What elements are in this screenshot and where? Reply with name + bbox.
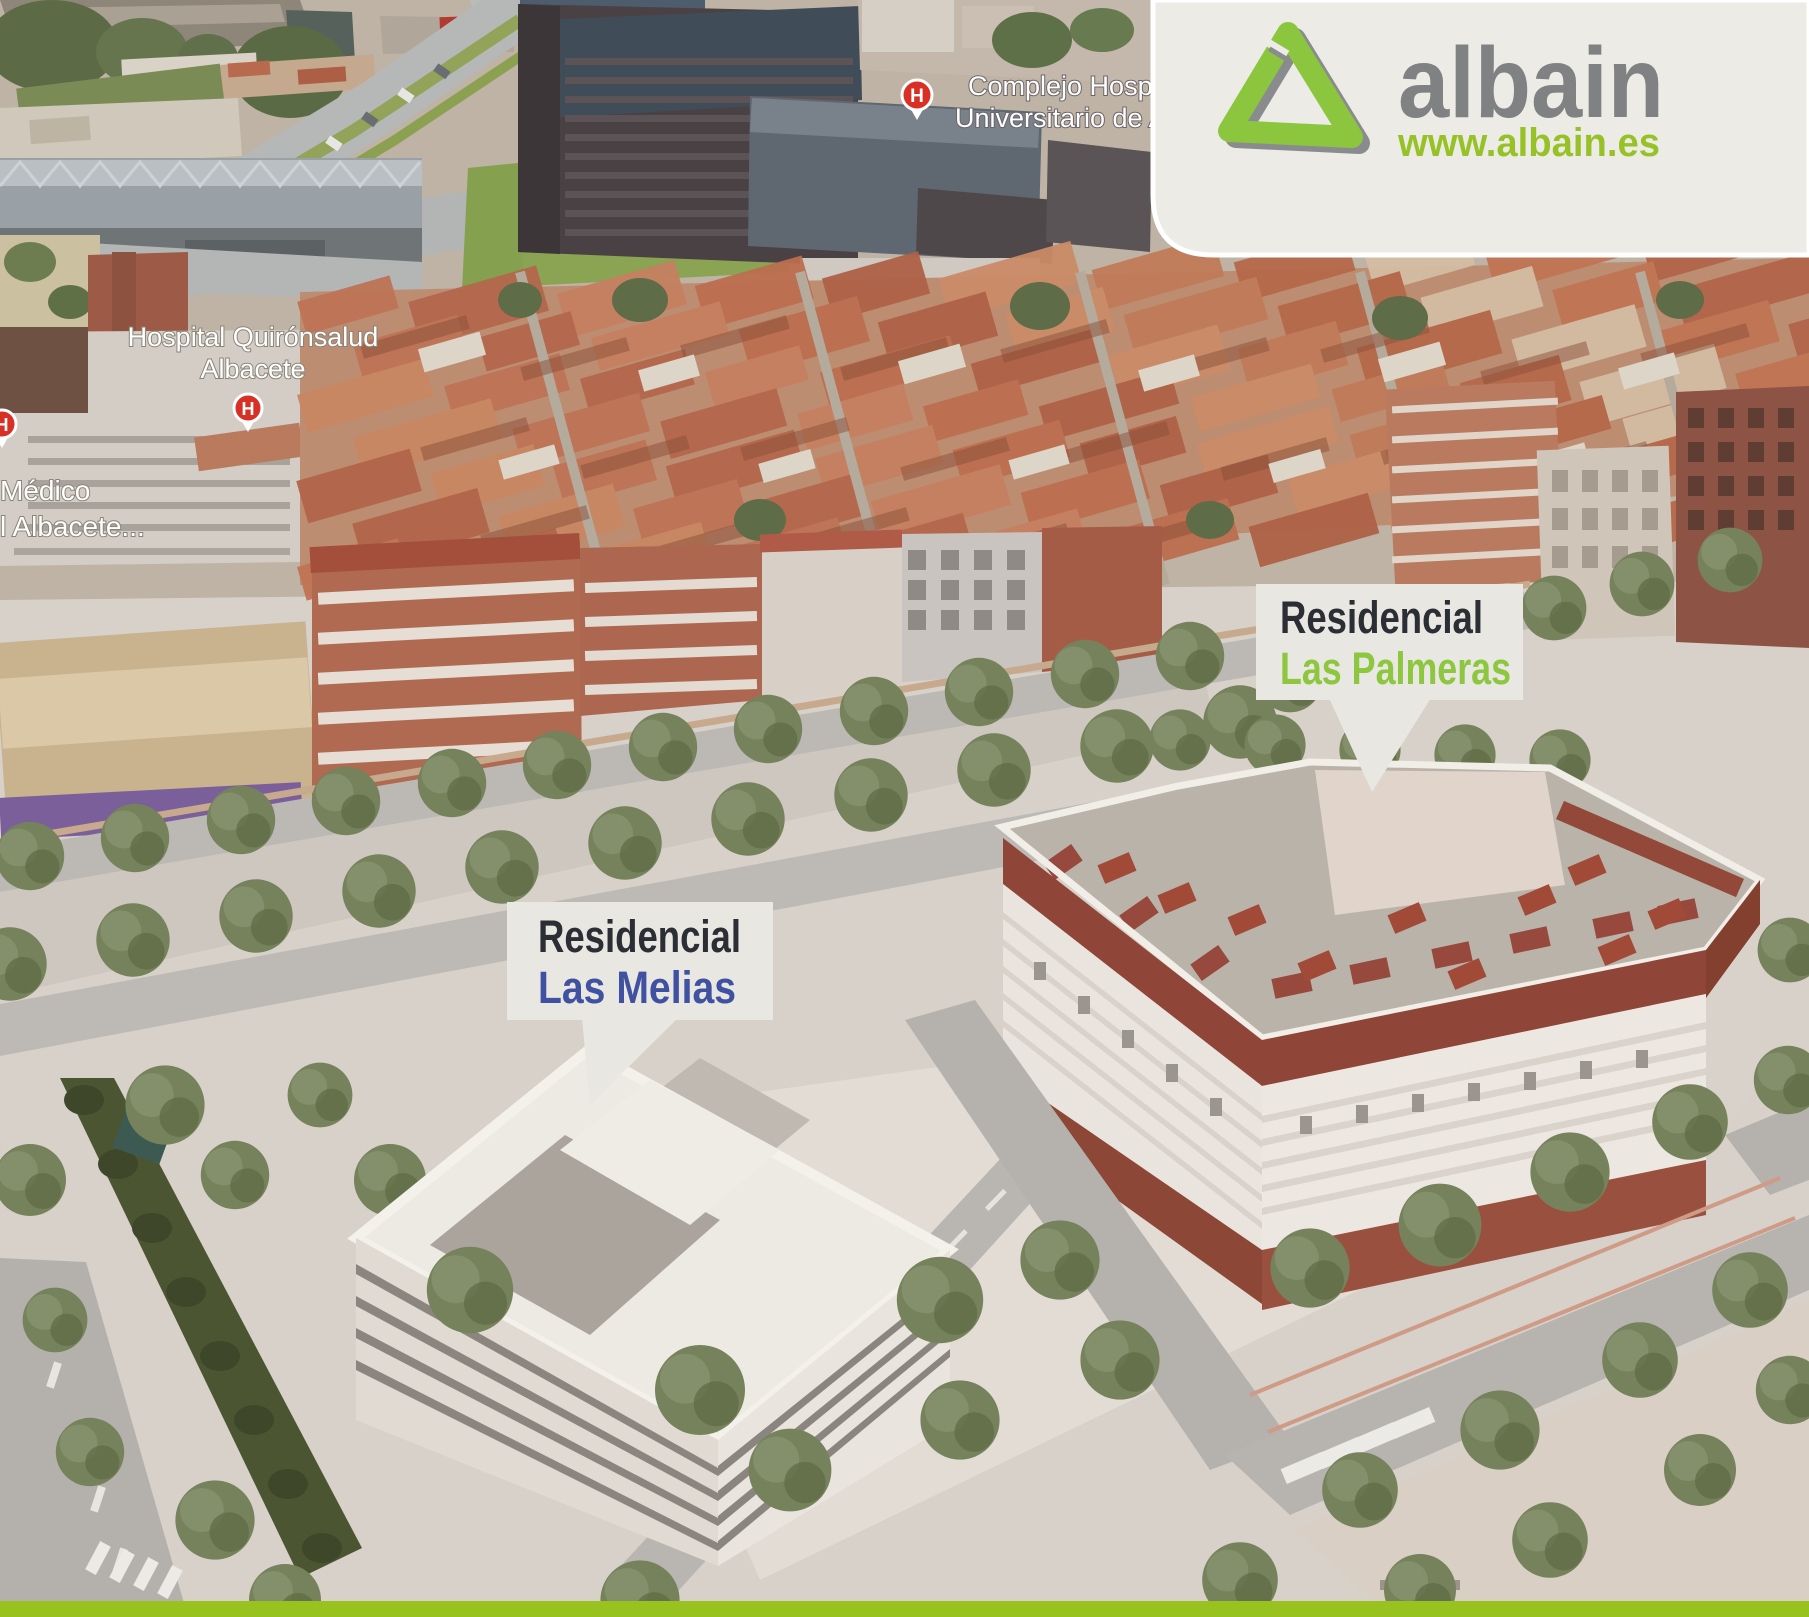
svg-text:Complejo Hospita: Complejo Hospita — [968, 71, 1182, 101]
svg-text:Las Palmeras: Las Palmeras — [1280, 643, 1511, 694]
svg-text:Albacete: Albacete — [200, 354, 305, 384]
svg-text:www.albain.es: www.albain.es — [1397, 121, 1660, 165]
svg-text:Las Melias: Las Melias — [538, 962, 736, 1013]
svg-text:Residencial: Residencial — [538, 911, 741, 962]
svg-text:Residencial: Residencial — [1280, 592, 1483, 643]
svg-text:l Albacete...: l Albacete... — [0, 511, 145, 542]
svg-text:Hospital Quirónsalud: Hospital Quirónsalud — [128, 322, 379, 352]
svg-text:H: H — [910, 86, 924, 107]
svg-text:H: H — [0, 415, 9, 435]
svg-text:H: H — [242, 399, 255, 419]
svg-text:Médico: Médico — [0, 475, 90, 506]
